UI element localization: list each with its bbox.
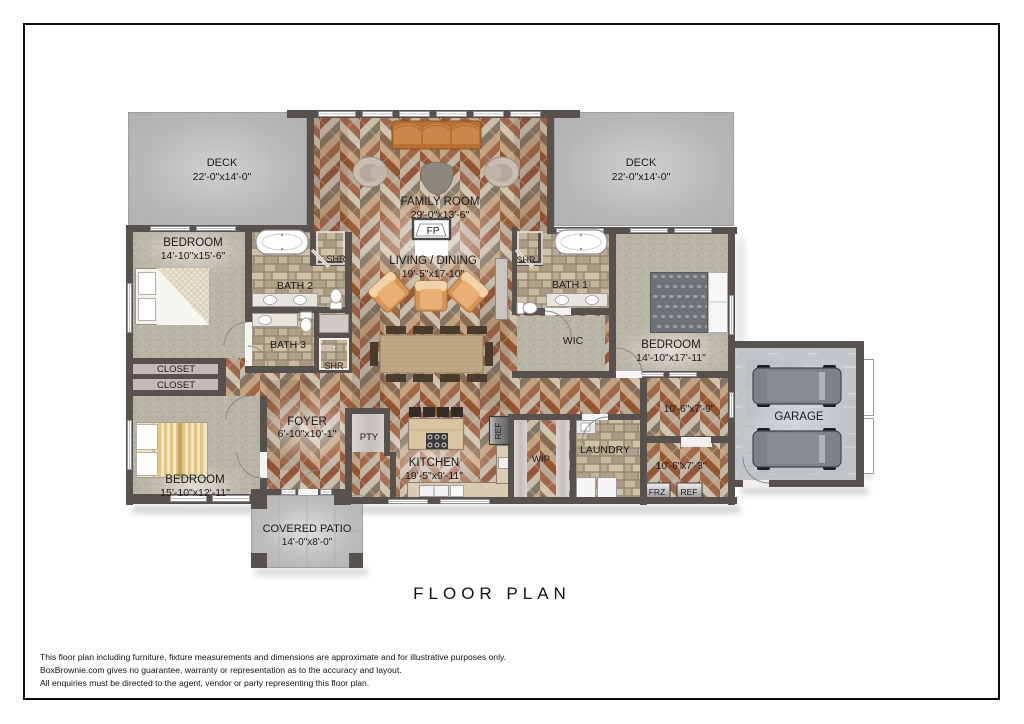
svg-text:BEDROOM: BEDROOM <box>641 339 700 351</box>
svg-text:FAMILY ROOM: FAMILY ROOM <box>401 196 480 208</box>
svg-text:BATH 3: BATH 3 <box>270 339 306 351</box>
svg-text:SHR: SHR <box>516 255 536 265</box>
svg-text:CLOSET: CLOSET <box>157 380 195 391</box>
svg-text:WIC: WIC <box>563 335 584 347</box>
svg-text:6'-10"x10'-1": 6'-10"x10'-1" <box>278 428 337 440</box>
svg-text:14'-10"x15'-6": 14'-10"x15'-6" <box>161 250 226 262</box>
svg-text:SHR: SHR <box>324 361 344 371</box>
svg-text:29'-0"x13'-6": 29'-0"x13'-6" <box>411 209 470 221</box>
svg-text:15'-10"x12'-11": 15'-10"x12'-11" <box>160 487 230 499</box>
svg-text:22'-0"x14'-0": 22'-0"x14'-0" <box>193 171 252 183</box>
svg-text:WIP: WIP <box>532 454 550 465</box>
svg-text:REF: REF <box>493 423 503 440</box>
svg-text:FOYER: FOYER <box>287 416 327 428</box>
svg-text:10'-6"x7'-3": 10'-6"x7'-3" <box>656 461 707 472</box>
svg-text:19'-5"x9'-11": 19'-5"x9'-11" <box>405 470 463 482</box>
svg-text:FP: FP <box>427 226 440 237</box>
svg-text:FLOOR PLAN: FLOOR PLAN <box>413 584 571 603</box>
svg-text:REF: REF <box>681 487 698 497</box>
svg-text:COVERED PATIO: COVERED PATIO <box>263 523 352 535</box>
svg-text:LIVING / DINING: LIVING / DINING <box>389 255 477 267</box>
svg-text:GARAGE: GARAGE <box>774 411 824 423</box>
svg-text:BATH 1: BATH 1 <box>552 279 588 291</box>
svg-text:CLOSET: CLOSET <box>157 364 195 375</box>
svg-text:This floor plan including furn: This floor plan including furniture, fix… <box>40 652 506 662</box>
svg-text:14'-0"x8'-0": 14'-0"x8'-0" <box>282 537 333 548</box>
svg-text:BoxBrownie.com gives no guaran: BoxBrownie.com gives no guarantee, warra… <box>40 665 402 675</box>
svg-text:LAUNDRY: LAUNDRY <box>580 444 630 456</box>
svg-text:All enquiries must be directed: All enquiries must be directed to the ag… <box>40 678 369 688</box>
svg-text:22'-0"x14'-0": 22'-0"x14'-0" <box>612 171 671 183</box>
svg-text:10'-6"x7'-9": 10'-6"x7'-9" <box>664 404 715 415</box>
svg-text:SHR: SHR <box>326 254 346 264</box>
svg-text:PTY: PTY <box>360 432 379 443</box>
svg-text:BEDROOM: BEDROOM <box>165 474 224 486</box>
svg-text:DECK: DECK <box>626 157 657 169</box>
svg-text:BEDROOM: BEDROOM <box>163 237 222 249</box>
svg-text:BATH 2: BATH 2 <box>277 280 313 292</box>
svg-text:14'-10"x17'-11": 14'-10"x17'-11" <box>636 352 706 364</box>
svg-text:KITCHEN: KITCHEN <box>409 457 459 469</box>
svg-text:DECK: DECK <box>207 157 238 169</box>
svg-text:FRZ: FRZ <box>649 487 666 497</box>
svg-text:19'-5"x17-10": 19'-5"x17-10" <box>402 268 465 280</box>
